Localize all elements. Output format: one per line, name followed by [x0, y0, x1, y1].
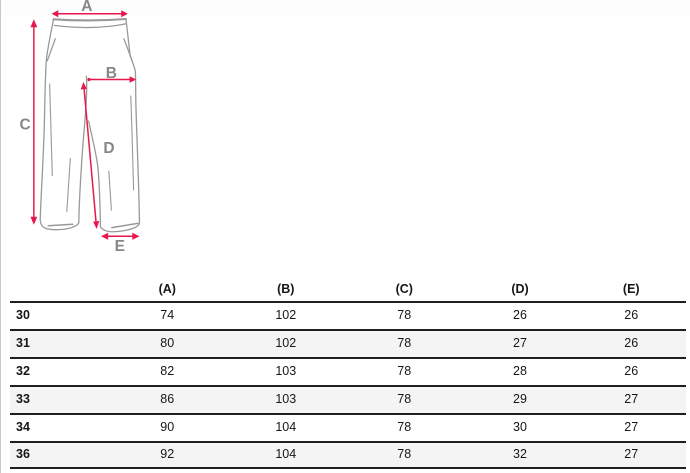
- svg-text:D: D: [103, 140, 114, 157]
- svg-text:B: B: [106, 65, 117, 82]
- svg-text:A: A: [81, 0, 92, 15]
- svg-text:E: E: [115, 238, 125, 255]
- svg-text:C: C: [19, 116, 30, 133]
